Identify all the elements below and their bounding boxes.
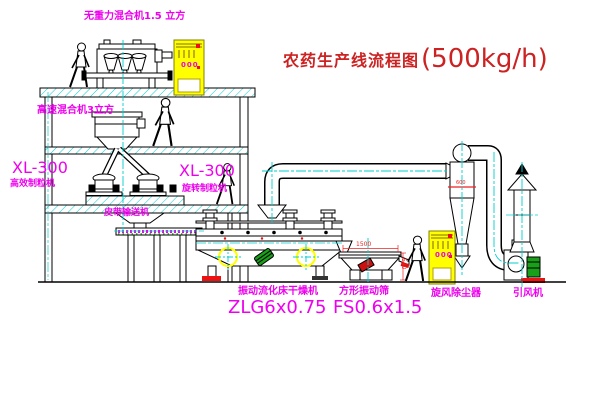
- mid-mixer-label: 高速混合机3立方: [37, 106, 114, 116]
- title-capacity: (500kg/h): [421, 44, 548, 74]
- cabinet-top-display: 000: [181, 62, 199, 69]
- person-mid-floor: [153, 98, 174, 146]
- screen-height-dimension: 540: [400, 258, 406, 269]
- diagram-canvas: 无重力混合机1.5 立方 农药生产线流程图 (500kg/h) 高速混合机3立方…: [0, 0, 600, 403]
- page-title: 农药生产线流程图 (500kg/h): [283, 44, 548, 74]
- left-granulator-label: 高效制粒机: [10, 180, 55, 189]
- cabinet-bottom-display: 000: [435, 252, 453, 259]
- fluid-bed-dryer: [196, 210, 342, 281]
- dryer-model-label: ZLG6x0.75: [228, 299, 327, 317]
- cyclone-label: 旋风除尘器: [431, 289, 481, 299]
- granulator-unit-left: [86, 174, 122, 196]
- fan-motor: [527, 257, 540, 277]
- fan-label: 引风机: [513, 289, 543, 299]
- belt-conveyor: [116, 228, 202, 235]
- screen-model-label: FS0.6x1.5: [333, 299, 422, 317]
- person-top-floor: [70, 43, 89, 87]
- rotary-granulator-label: 旋转制粒机: [182, 185, 227, 194]
- screen-length-dimension: 1500: [356, 242, 371, 248]
- title-text: 农药生产线流程图: [283, 47, 419, 71]
- gravity-free-mixer: [82, 40, 172, 88]
- granulators: [86, 174, 184, 205]
- vibrating-screen: [336, 241, 409, 280]
- granulator-unit-right: [130, 174, 166, 196]
- mixer-bowls: [104, 54, 146, 75]
- left-granulator-model-label: XL-300: [12, 160, 68, 176]
- cyclone-dimension: 600: [456, 181, 466, 186]
- person-ground: [406, 236, 425, 281]
- high-speed-mixer: [92, 112, 145, 149]
- top-mixer-label: 无重力混合机1.5 立方: [84, 12, 185, 22]
- dryer-label: 振动流化床干燥机: [238, 287, 318, 297]
- screen-label: 方形振动筛: [339, 287, 389, 297]
- rotary-granulator-model-label: XL-300: [179, 163, 235, 179]
- belt-conveyor-label: 皮带输送机: [104, 209, 149, 218]
